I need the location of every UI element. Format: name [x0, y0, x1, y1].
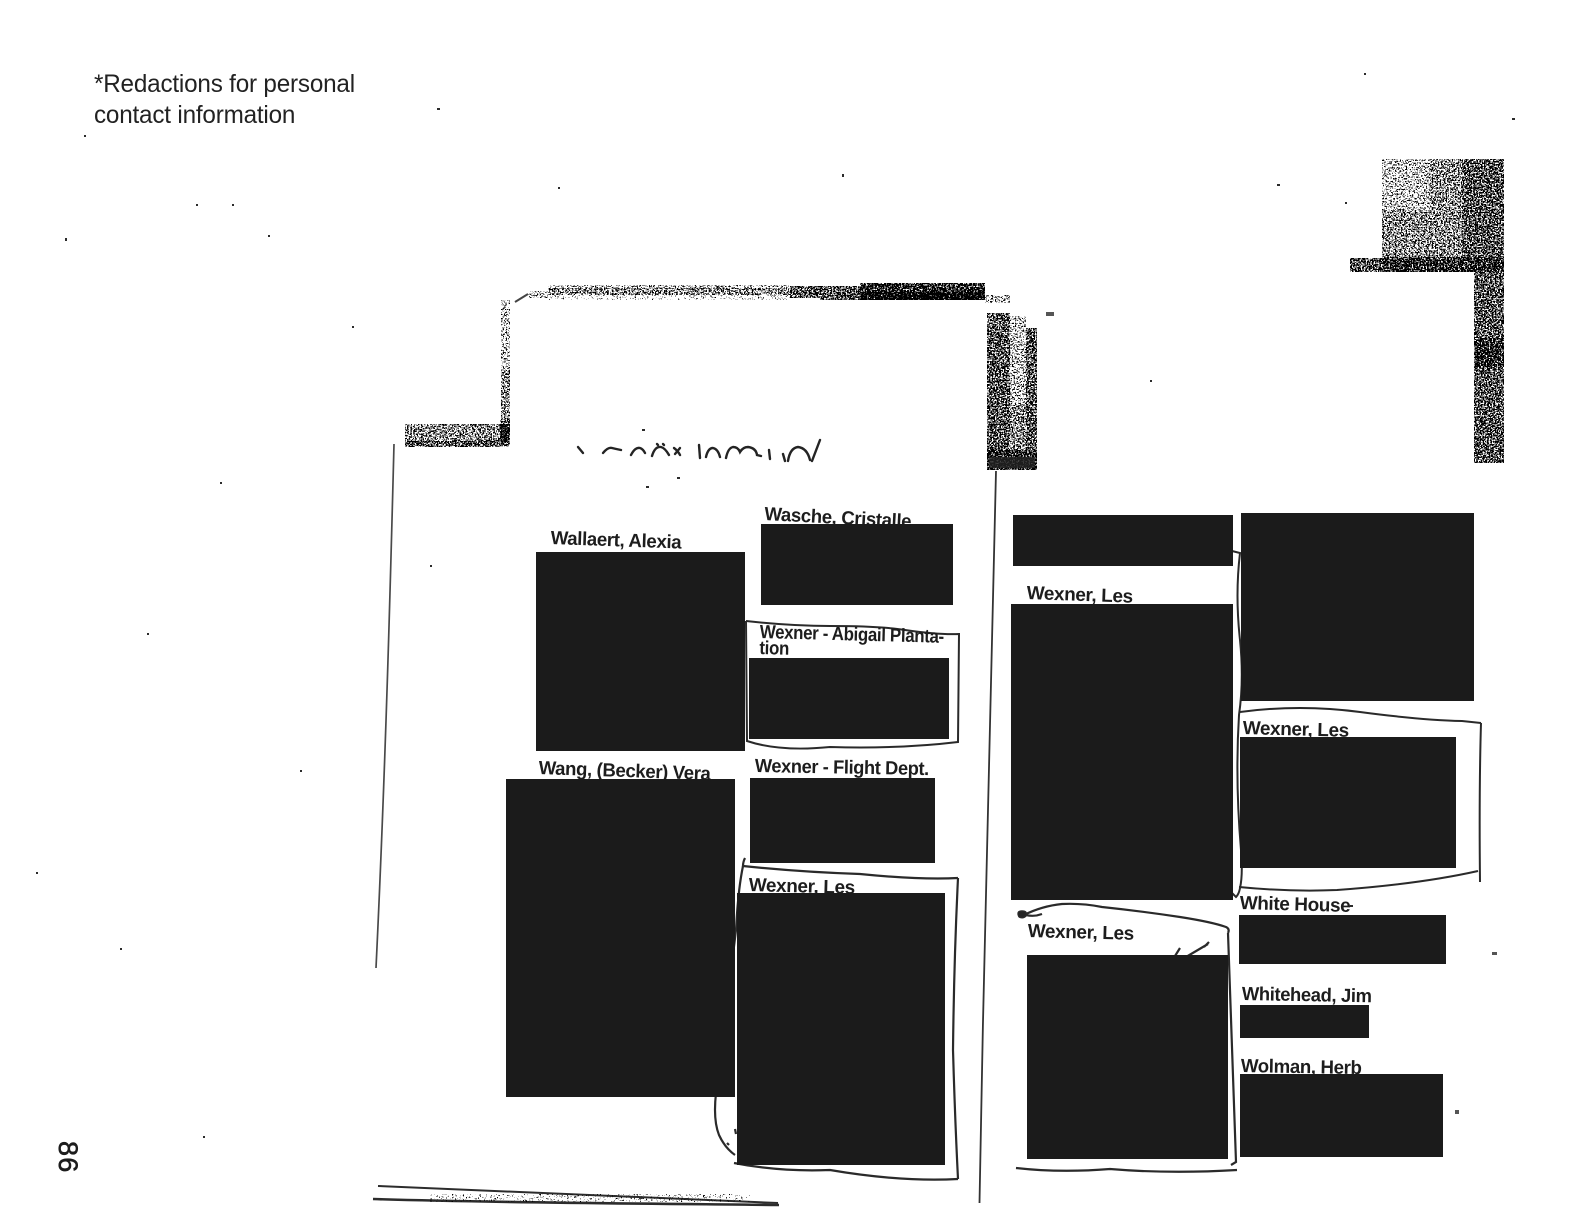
svg-text:86: 86: [53, 1141, 83, 1173]
